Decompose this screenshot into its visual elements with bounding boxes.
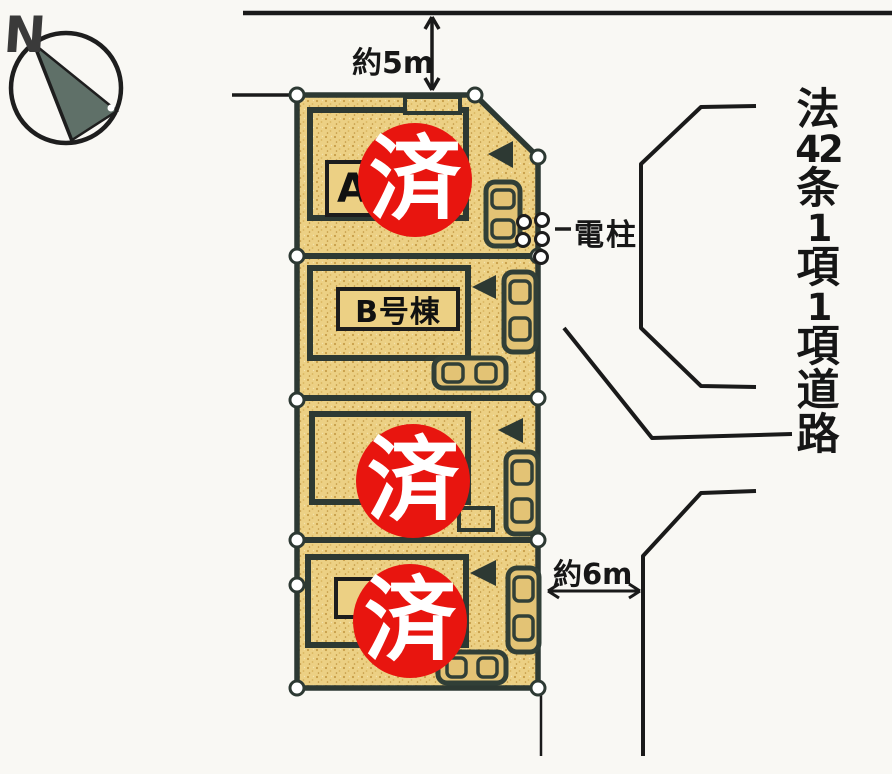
east-road-middle-edge — [564, 328, 792, 438]
side-road-width-label: 約6m — [553, 551, 632, 593]
car-icon-lot-2-front — [434, 358, 506, 388]
sold-stamp-lot-1: 済 — [358, 123, 472, 237]
road-designation-char: 道 — [790, 369, 846, 413]
road-designation-char: 42 — [790, 132, 846, 167]
building-label-lot-2: B号棟 — [336, 287, 460, 331]
site-plan: N 約5m 電柱 約6m 法 42 条 1 項 1 項 道 路 A B号棟 済 … — [0, 0, 892, 774]
sold-stamp-lot-3: 済 — [356, 424, 470, 538]
road-designation-char: 法 — [790, 88, 846, 132]
east-road-upper-edge — [641, 106, 756, 387]
road-designation-char: 路 — [790, 413, 846, 457]
car-icon-lot-2-side — [504, 272, 536, 352]
building-porch-lot-1 — [405, 97, 460, 113]
top-road-width-label: 約5m — [352, 38, 434, 82]
road-designation-char: 項 — [790, 325, 846, 369]
car-icon-lot-1 — [486, 182, 520, 246]
road-designation-char: 条 — [790, 167, 846, 211]
car-icon-lot-4-side — [508, 568, 539, 652]
east-road-lower-edge — [643, 491, 756, 756]
sold-stamp-lot-4: 済 — [353, 564, 467, 678]
building-annex-lot-3 — [459, 508, 493, 530]
road-designation-char: 項 — [790, 246, 846, 290]
road-designation-char: 1 — [790, 290, 846, 325]
utility-pole-label: 電柱 — [574, 210, 638, 254]
car-icon-lot-3 — [506, 452, 538, 534]
road-designation-label: 法 42 条 1 項 1 項 道 路 — [790, 88, 846, 457]
compass-north-label: N — [2, 6, 48, 64]
road-designation-char: 1 — [790, 211, 846, 246]
